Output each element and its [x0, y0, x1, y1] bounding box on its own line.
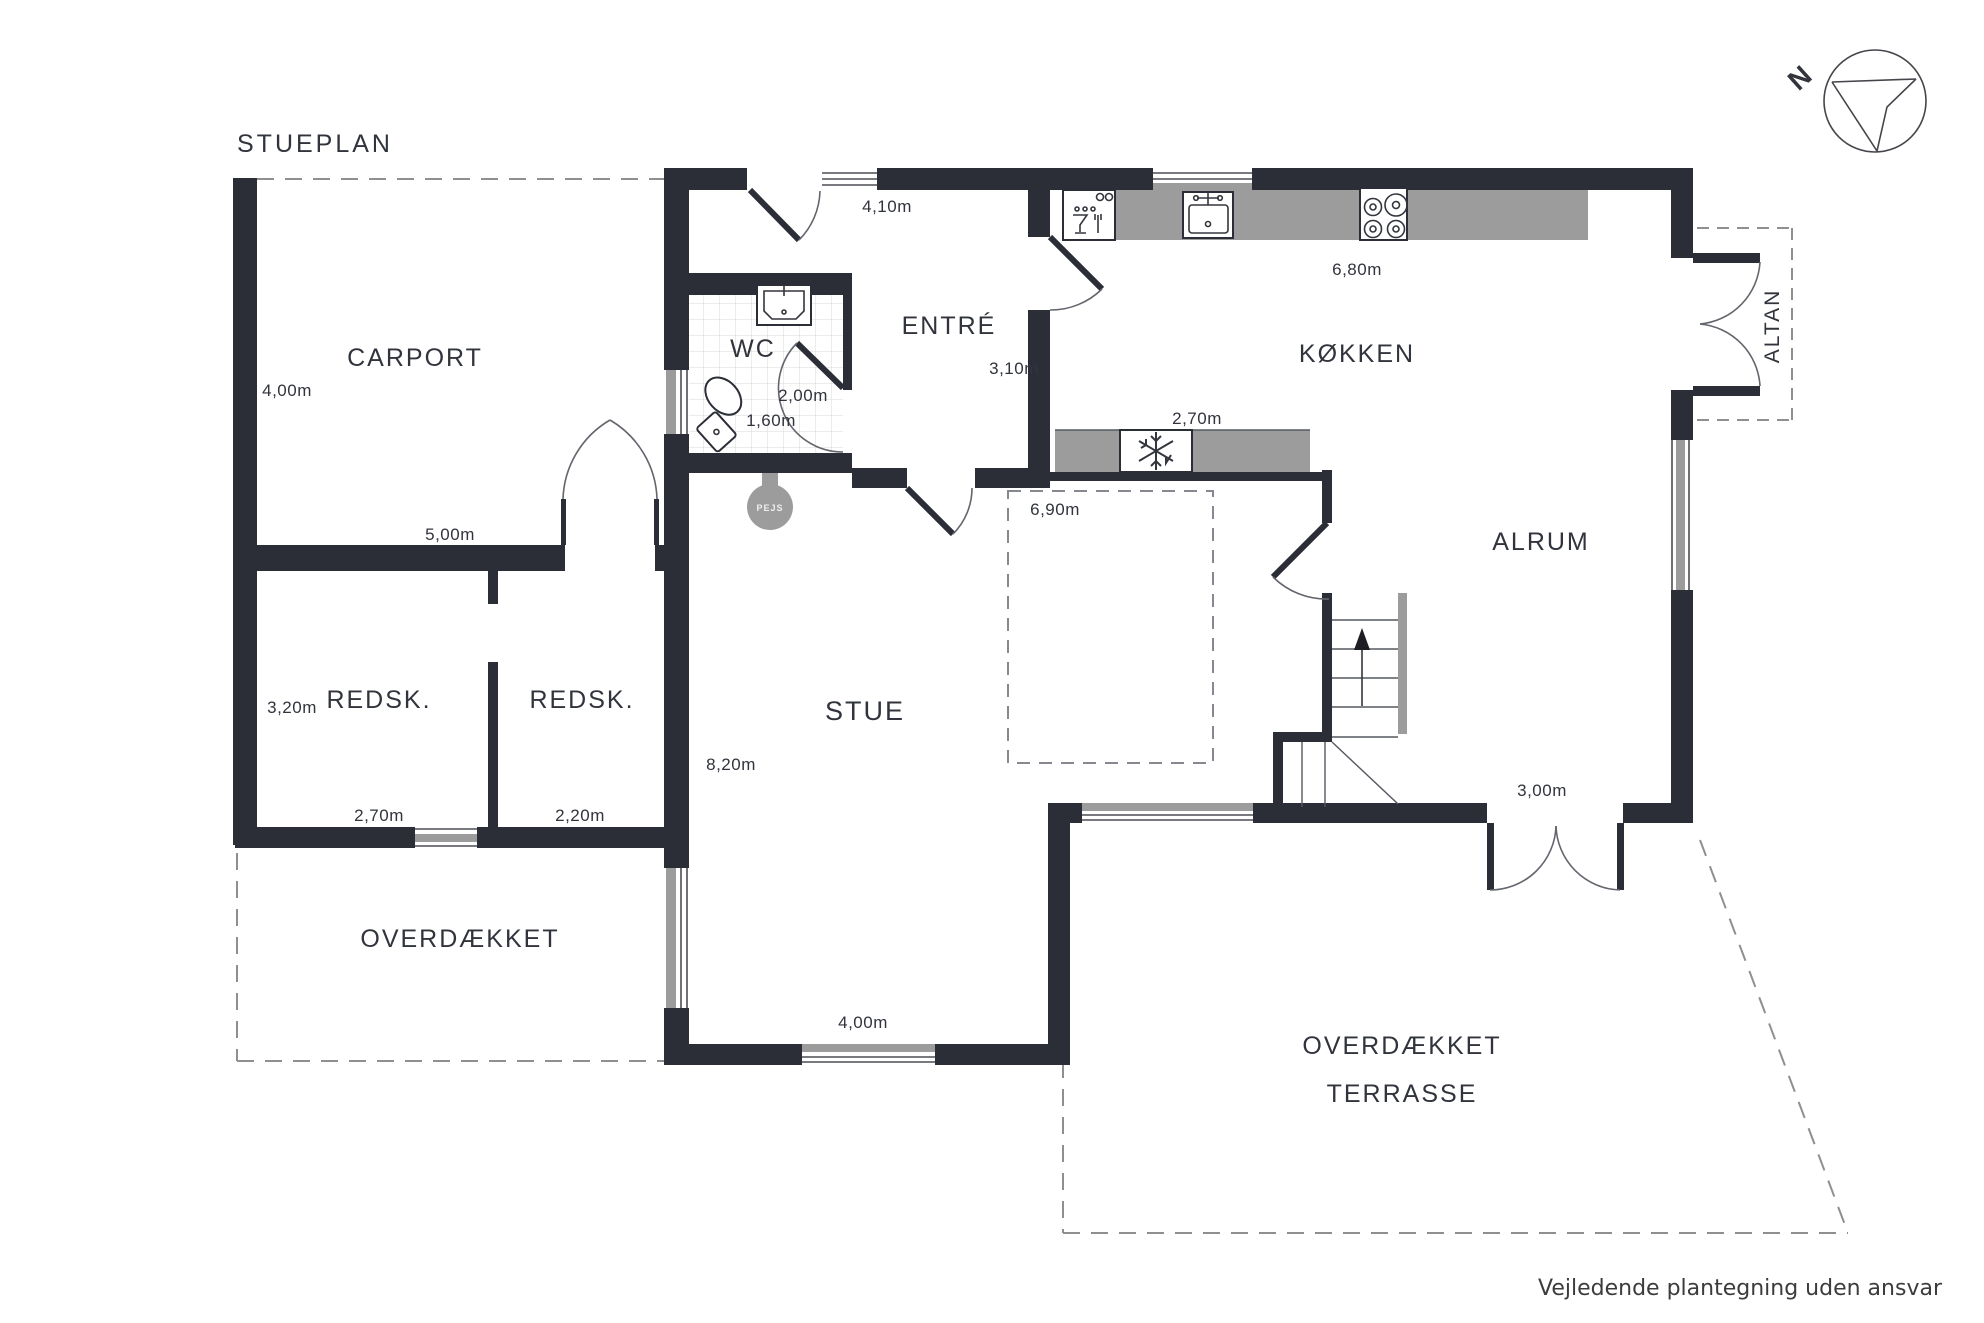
stue-dining-dim: 6,90m: [1030, 500, 1080, 519]
entre-label: ENTRÉ: [902, 311, 997, 340]
stue-label: STUE: [825, 696, 905, 726]
altan-french-doors: [1700, 262, 1760, 386]
entre-entry-dim: 4,10m: [862, 197, 912, 216]
fridge-icon: [1120, 430, 1192, 472]
terrasse-right-line: [1700, 840, 1848, 1233]
terrace-double-door: [1490, 826, 1620, 890]
stue-bottom-window: [802, 1044, 935, 1065]
fireplace-pejs: [747, 473, 793, 530]
alrum-label: ALRUM: [1492, 528, 1590, 556]
redsk-right-label: REDSK.: [529, 686, 634, 714]
floor-plan-canvas: N STUEPLAN CARPORT 4,00m 5,00m REDSK. RE…: [0, 0, 1984, 1323]
wc-sink-icon: [757, 285, 811, 325]
stue-door: [907, 488, 972, 534]
redsk-left-label: REDSK.: [326, 686, 431, 714]
dishwasher-icon: [1063, 190, 1115, 240]
stove-icon: [1360, 188, 1407, 240]
redsk-right-width-dim: 2,20m: [555, 806, 605, 825]
stairs-up-arrow: [1354, 628, 1370, 706]
terrasse-label-line1: OVERDÆKKET: [1302, 1032, 1501, 1060]
redsk-left-width-dim: 2,70m: [354, 806, 404, 825]
carport-height-dim: 4,00m: [262, 381, 312, 400]
alrum-terrace-door-dim: 3,00m: [1517, 781, 1567, 800]
disclaimer-text: Vejledende plantegning uden ansvar: [1538, 1276, 1943, 1301]
alrum-east-window: [1671, 440, 1693, 590]
page-title: STUEPLAN: [237, 130, 393, 158]
alrum-bottom-window: [1082, 803, 1253, 823]
floor-plan-page: N STUEPLAN CARPORT 4,00m 5,00m REDSK. RE…: [0, 0, 1984, 1323]
overdaekket-label: OVERDÆKKET: [360, 925, 559, 953]
redsk-window: [415, 827, 477, 848]
north-compass-icon: N: [1782, 50, 1926, 152]
pejs-label: PEJS: [756, 503, 783, 513]
terrasse-label-line2: TERRASSE: [1327, 1080, 1478, 1108]
entry-door: [750, 190, 820, 240]
wc-depth-dim: 1,60m: [746, 411, 796, 430]
kokken-label: KØKKEN: [1299, 340, 1415, 368]
entre-top-window: [822, 168, 877, 190]
alrum-door: [1273, 523, 1329, 599]
stue-window-dim: 4,00m: [838, 1013, 888, 1032]
dining-area-dashed-rect: [1008, 491, 1213, 763]
redsk-left-height-dim: 3,20m: [267, 698, 317, 717]
wc-width-dim: 2,00m: [778, 386, 828, 405]
kitchen-sink-icon: [1183, 192, 1233, 238]
wc-west-window: [664, 370, 689, 434]
compass-north-label: N: [1782, 60, 1818, 97]
entre-width-dim: 3,10m: [989, 359, 1039, 378]
carport-label: CARPORT: [347, 344, 483, 372]
kokken-counter-dim: 6,80m: [1332, 260, 1382, 279]
stairs: [1302, 593, 1407, 807]
carport-width-dim: 5,00m: [425, 525, 475, 544]
stue-height-dim: 8,20m: [706, 755, 756, 774]
kitchen-door: [1050, 237, 1102, 310]
wc-label: WC: [730, 335, 776, 363]
altan-label: ALTAN: [1761, 289, 1784, 364]
kitchen-window: [1153, 168, 1252, 190]
stue-west-window: [664, 868, 689, 1008]
kokken-island-dim: 2,70m: [1172, 409, 1222, 428]
carport-gate: [561, 420, 659, 545]
